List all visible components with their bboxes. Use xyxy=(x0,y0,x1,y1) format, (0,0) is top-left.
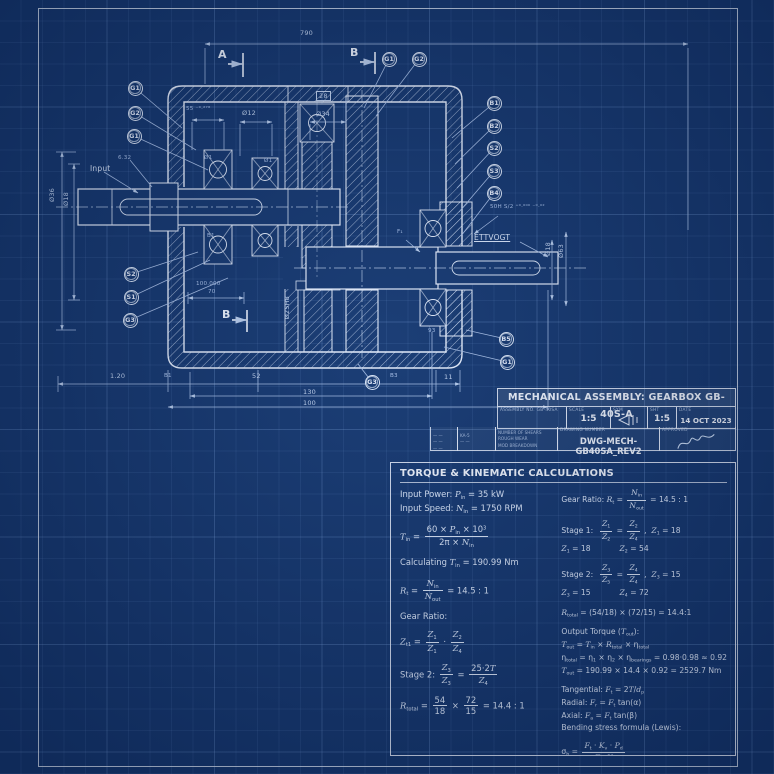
sheet-cell: SHT 1:5 xyxy=(647,407,677,429)
part-balloon: S2 xyxy=(487,141,502,156)
dim-label: 70 xyxy=(208,289,216,295)
date-label: DATE xyxy=(679,408,691,413)
dim-label: 52 xyxy=(252,372,261,380)
part-balloon: G2 xyxy=(412,52,427,67)
calc-right-column: Gear Ratio: Rt = NinNout = 14.5 : 1Stage… xyxy=(561,488,727,756)
dim-label: Ø36 xyxy=(48,188,56,202)
formula-block: Tin = 60 × Pin × 1032π × Nin xyxy=(400,524,561,550)
part-balloon: G2 xyxy=(128,106,143,121)
dim-label: 28 xyxy=(316,91,331,101)
dim-label: B1 xyxy=(164,373,172,379)
formula-block: Gear Ratio: xyxy=(400,610,561,622)
dim-label: B3 xyxy=(390,373,398,379)
formula-block: Rtotal = 5418 × 7215 = 14.4 : 1 xyxy=(400,695,561,717)
blueprint-sheet: G1G2G1S2S1G3G1G2B1B2S2S3B4B5G1G3790ABB28… xyxy=(0,0,774,774)
formula-block: Stage 1: Z1Z2 = Z2Z4 , Z1 = 18Z1 = 18 Z2… xyxy=(561,519,727,556)
part-balloon: B4 xyxy=(487,186,502,201)
drawing-number-cell: DRAWING NUMBER DWG-MECH-GB40SA_REV2 xyxy=(557,427,660,451)
formula-block: Output Torque (Tout):Tout = Tin × Rtotal… xyxy=(561,626,727,677)
formula-block: Gear Ratio: Rt = NinNout = 14.5 : 1 xyxy=(561,488,727,512)
part-balloon: G1 xyxy=(127,129,142,144)
dim-label: 6.32 xyxy=(118,155,131,161)
revision-lines: — —— —— — xyxy=(433,433,443,452)
dim-label: Ø18 xyxy=(544,242,552,256)
section-letter: B xyxy=(350,46,359,59)
dim-label: 11 xyxy=(444,373,453,381)
part-balloon: S2 xyxy=(124,267,139,282)
calculations-panel: TORQUE & KINEMATIC CALCULATIONS Input Po… xyxy=(390,462,736,756)
title-block: MECHANICAL ASSEMBLY: GEARBOX GB-40S-A AS… xyxy=(497,388,736,429)
dim-label: 100.000 xyxy=(196,281,221,287)
assembly-no-label: ASSEMBLY NO. GB-40SA xyxy=(500,408,558,413)
part-balloon: G3 xyxy=(123,313,138,328)
formula-block: Zt1 = Z1Z1 · Z2Z4 xyxy=(400,629,561,655)
title-block-row-2: — —— —— — KA-5— — NUMBER OF SHEARSROUGH … xyxy=(430,427,736,451)
formula-block: Rtotal = (54/18) × (72/15) = 14.4:1 xyxy=(561,607,727,620)
dim-label: Ø25H8 xyxy=(283,296,291,319)
dim-label: B1 xyxy=(207,233,215,239)
dim-label: 55 ⁻⁰·²⁷⁸ xyxy=(186,106,210,112)
formula-block: Tangential: Ft = 2T/dpRadial: Fr = Ft ta… xyxy=(561,684,727,734)
dim-label: ETTVOGT xyxy=(474,233,510,242)
sheet-label: SHT xyxy=(650,408,659,413)
drawing-number-value: DWG-MECH-GB40SA_REV2 xyxy=(558,436,659,456)
projection-cell: SYM xyxy=(610,407,648,429)
dim-label: 50H S/2 ⁺⁰·⁰⁰⁰ ⁻⁰·⁰² xyxy=(490,204,545,210)
sheet-value: 1:5 xyxy=(648,414,676,424)
part-balloon: G3 xyxy=(365,375,380,390)
dim-label: F₁ xyxy=(397,229,403,235)
scale-label: SCALE xyxy=(569,408,584,413)
dim-label: Ø1 xyxy=(264,158,272,164)
dim-label: 1.20 xyxy=(110,372,125,380)
dim-label: 93 xyxy=(428,328,436,334)
revision-cell: — —— —— — xyxy=(430,427,458,451)
dim-label: 130 xyxy=(303,388,316,396)
dim-label: Ø12 xyxy=(242,109,256,117)
title-block-row-1: ASSEMBLY NO. GB-40SA SCALE 1:5 SYM SHT 1… xyxy=(497,407,736,429)
formula-block: Rt = NinNout = 14.5 : 1 xyxy=(400,578,561,604)
part-balloon: S1 xyxy=(124,290,139,305)
code-lines: KA-5— — xyxy=(460,433,470,446)
dim-label: Ø34 xyxy=(316,110,330,118)
dim-label: 100 xyxy=(303,399,316,407)
formula-block: Calculating Tin = 190.99 Nm xyxy=(400,556,561,570)
sheets-lines: NUMBER OF SHEARSROUGH WEARMOD BREAKDOWN xyxy=(498,430,542,449)
part-balloon: B2 xyxy=(487,119,502,134)
part-balloon: G1 xyxy=(382,52,397,67)
code-cell: KA-5— — xyxy=(457,427,496,451)
formula-block: Input Power: Pin = 35 kWInput Speed: Nin… xyxy=(400,488,561,517)
dim-label: 790 xyxy=(300,29,313,37)
part-balloon: G1 xyxy=(500,355,515,370)
drawing-number-label: DRAWING NUMBER xyxy=(560,428,605,433)
formula-block: Stage 2: Z3Z5 = Z4Z4 , Z3 = 15Z3 = 15 Z4… xyxy=(561,563,727,600)
dim-label: Ø18 xyxy=(62,192,70,206)
sheets-cell: NUMBER OF SHEARSROUGH WEARMOD BREAKDOWN xyxy=(495,427,558,451)
date-cell: DATE 14 OCT 2023 xyxy=(676,407,736,429)
formula-block: Stage 2: Z3Z3 = 25·2TZ4 xyxy=(400,662,561,688)
scale-value: 1:5 xyxy=(567,414,610,424)
section-letter: B xyxy=(222,308,231,321)
drawing-title: MECHANICAL ASSEMBLY: GEARBOX GB-40S-A xyxy=(497,388,736,407)
approved-cell: APPROVED xyxy=(659,427,736,451)
dim-label: Input xyxy=(90,164,110,173)
date-value: 14 OCT 2023 xyxy=(677,416,735,425)
part-balloon: B1 xyxy=(487,96,502,111)
dim-label: Ø1 xyxy=(204,155,212,161)
part-balloon: B5 xyxy=(499,332,514,347)
calc-left-column: Input Power: Pin = 35 kWInput Speed: Nin… xyxy=(400,488,561,756)
part-balloon: S3 xyxy=(487,164,502,179)
section-letter: A xyxy=(218,48,227,61)
calculations-title: TORQUE & KINEMATIC CALCULATIONS xyxy=(400,468,727,483)
third-angle-projection-icon xyxy=(617,413,643,427)
scale-cell: SCALE 1:5 xyxy=(566,407,611,429)
formula-block: σb = Ft · Kv · PdF · Y xyxy=(561,741,727,756)
assembly-no-cell: ASSEMBLY NO. GB-40SA xyxy=(497,407,567,429)
dim-label: Ø63 xyxy=(557,244,565,258)
approved-label: APPROVED xyxy=(662,428,688,433)
part-balloon: G1 xyxy=(128,81,143,96)
